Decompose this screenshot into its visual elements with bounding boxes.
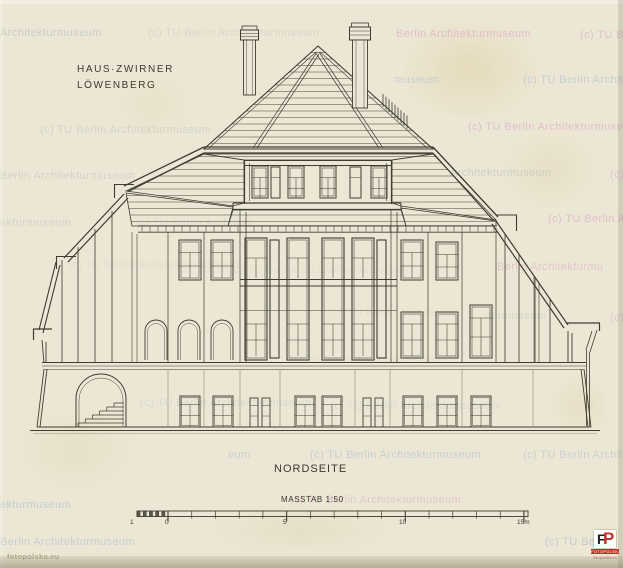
elevation-caption: NORDSEITE <box>274 463 347 475</box>
dormer-band <box>244 160 392 204</box>
logo-band-text: FOTOPOLSKA <box>591 549 619 554</box>
entrance-arch <box>76 374 126 427</box>
logo-letter-p: P <box>603 530 614 548</box>
fotopolska-logo: F P FOTOPOLSKA fotopolska.eu <box>589 530 621 560</box>
scale-caption: MASSTAB 1:50 <box>281 495 344 504</box>
gutter-downpipe <box>586 330 597 426</box>
chimney-right <box>350 23 371 108</box>
scale-bar <box>137 511 528 522</box>
fotopolska-logo-monogram: F P <box>594 530 616 548</box>
scale-bar-number: 5 <box>283 519 287 526</box>
site-credit: fotopolska.eu <box>7 552 60 561</box>
scanned-architectural-drawing: Architekturmuseum(c) TU Berlin Architekt… <box>0 0 623 568</box>
arched-niches <box>145 320 233 360</box>
scale-bar-number: 1 <box>130 519 134 526</box>
drawing-title-line2: LÖWENBERG <box>77 78 174 94</box>
drawing-title: HAUS·ZWIRNER LÖWENBERG <box>77 62 174 94</box>
roof-lower-tier <box>33 193 600 426</box>
scale-bar-number: 0 <box>165 519 169 526</box>
scale-bar-number: 15m <box>517 519 530 526</box>
scale-bar-number: 10 <box>399 519 406 526</box>
drawing-title-line1: HAUS·ZWIRNER <box>77 62 174 78</box>
facade-cornice <box>138 226 497 232</box>
roof-upper-pyramid <box>204 46 433 149</box>
ground-line <box>30 431 600 434</box>
chimney-left <box>241 26 259 95</box>
entrance-steps <box>78 403 124 427</box>
logo-sub-text: fotopolska.eu <box>589 555 621 560</box>
facade <box>42 210 572 363</box>
basement <box>37 363 591 428</box>
